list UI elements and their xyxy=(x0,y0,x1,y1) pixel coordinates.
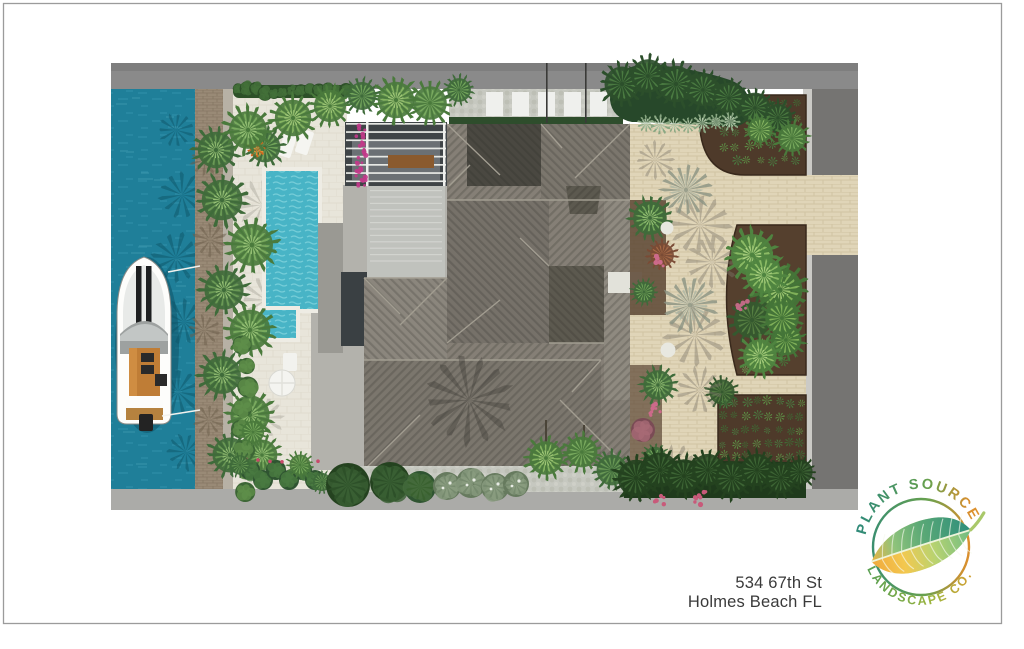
svg-text:Holmes Beach FL: Holmes Beach FL xyxy=(688,593,822,611)
svg-text:534 67th St: 534 67th St xyxy=(735,574,822,592)
